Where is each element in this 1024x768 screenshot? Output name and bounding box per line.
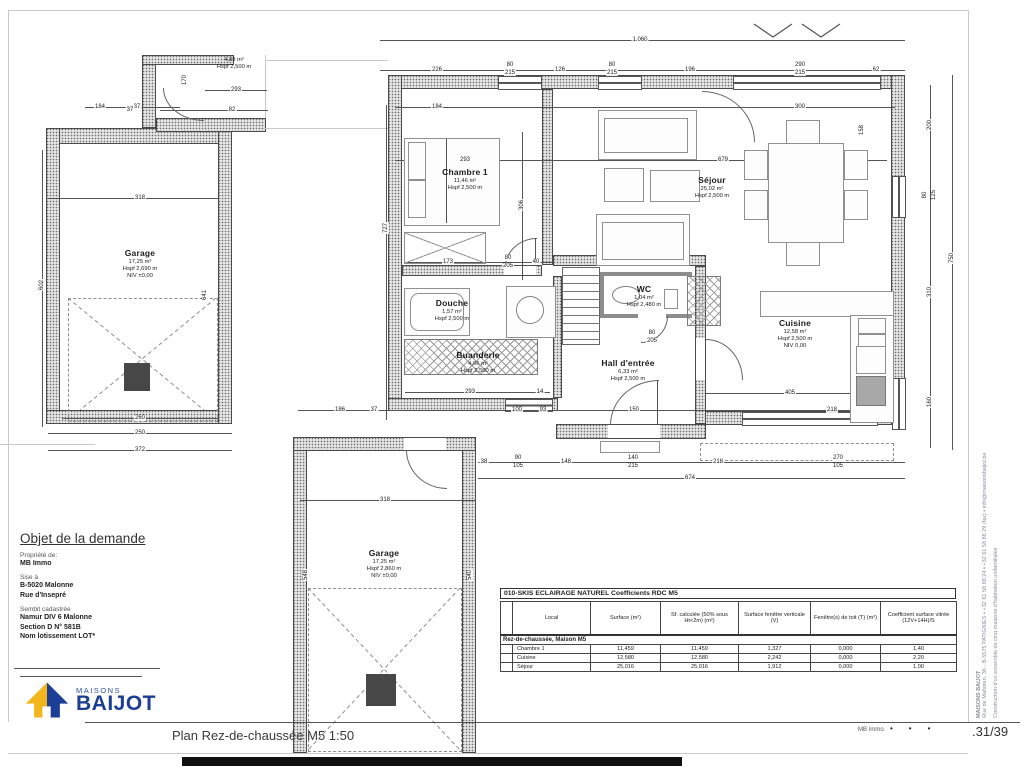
room-name: WC <box>627 284 661 294</box>
table-cell: 11,459 <box>591 645 661 654</box>
room-label: 4,88 m²Hspf 2,500 m <box>217 56 251 70</box>
table-cell: 0,000 <box>811 663 881 672</box>
room-detail: 6,33 m² <box>601 369 654 375</box>
dimension-label: 260 <box>134 415 146 421</box>
room-detail: Hspf 2,500 m <box>217 64 251 70</box>
furniture <box>786 120 820 144</box>
room-name: Garage <box>123 248 157 258</box>
partition-wall <box>600 314 638 318</box>
door-arc <box>706 339 743 380</box>
dimension-label: 184 <box>94 104 106 110</box>
roof-overhang-dashed <box>68 298 218 422</box>
furniture <box>858 318 886 334</box>
partition-wall <box>600 272 604 318</box>
dimension-label: 540 <box>467 569 473 581</box>
room-detail: 25,02 m² <box>695 186 729 192</box>
dimension-label: 80 <box>608 62 617 68</box>
frame-line <box>8 753 968 754</box>
architect-info-sidebar: MAISONS BAIJOT Rue de Mahoten, 36 - B-55… <box>976 198 999 718</box>
dimension-label: 290 <box>794 62 806 68</box>
plan-sheet: Garage17,25 m²Hspf 2,690 mNIV ±0,00Chamb… <box>0 0 1024 768</box>
table-row: Séjour25,01625,0161,9120,0001,00 <box>501 663 957 672</box>
room-name: Garage <box>367 548 401 558</box>
table-cell: 25,016 <box>661 663 739 672</box>
post <box>124 363 150 391</box>
staircase <box>562 267 600 345</box>
room-detail: 4,66 m² <box>456 361 499 367</box>
table-cell: 1,00 <box>881 663 957 672</box>
table-cell: Chambre 1 <box>513 645 591 654</box>
dimension-label: 184 <box>431 104 443 110</box>
dimension-label: 150 <box>628 407 640 413</box>
wall <box>156 118 266 132</box>
furniture <box>604 168 644 202</box>
dimension-label: 218 <box>826 407 838 413</box>
project-description: Construction d'un ensemble de cinq maiso… <box>993 198 999 718</box>
coefficients-table: LocalSurface (m²)Sf. calculée (50% sous … <box>500 601 957 672</box>
dimension-line <box>395 107 895 108</box>
furniture <box>786 242 820 266</box>
room-detail: NIV ±0,00 <box>123 273 157 279</box>
partition-wall <box>600 272 692 276</box>
room-name: Chambre 1 <box>442 167 488 177</box>
room-detail: Hspf 2,480 m <box>627 302 661 308</box>
wall <box>218 128 232 424</box>
room-name: Buanderie <box>456 350 499 360</box>
wall <box>293 437 307 753</box>
address-line2: Rue d'Insepré <box>20 591 220 600</box>
wall <box>142 55 156 128</box>
dimension-label: 93 <box>539 407 548 413</box>
furniture <box>602 222 684 260</box>
window <box>598 76 642 90</box>
dimension-label: 250 <box>134 430 146 436</box>
room-detail: Hspf 2,500 m <box>442 185 488 191</box>
wall <box>462 437 476 753</box>
dimension-label: 173 <box>442 259 454 265</box>
roof-vent-marks <box>752 22 844 40</box>
room-detail: Hspf 2,500 m <box>695 193 729 199</box>
furniture <box>408 142 426 180</box>
room-label: Garage17,25 m²Hspf 2,690 mNIV ±0,00 <box>123 248 157 279</box>
dimension-label: 215 <box>606 70 618 76</box>
dimension-label: 80 <box>506 62 515 68</box>
frame-line <box>265 60 388 61</box>
room-name: Hall d'entrée <box>601 358 654 368</box>
post <box>366 674 396 706</box>
owner-label: Propriété de: <box>20 552 220 559</box>
table-cell: 2,20 <box>881 654 957 663</box>
room-detail: Hspf 2,690 m <box>123 266 157 272</box>
dimension-label: 90 <box>514 455 523 461</box>
logo-name-text: BAIJOT <box>76 695 156 714</box>
dimension-label: 62 <box>872 67 881 73</box>
dimension-label: 306 <box>519 199 525 211</box>
wall <box>542 89 553 265</box>
room-label: Hall d'entrée6,33 m²Hspf 2,500 m <box>601 358 654 382</box>
dimension-label: 215 <box>504 70 516 76</box>
door-arc <box>702 91 755 142</box>
daylight-coefficients-table: 010-SKIS ECLAIRAGE NATUREL Coefficients … <box>500 588 956 672</box>
room-detail: 17,25 m² <box>367 559 401 565</box>
dimension-label: 140 <box>627 455 639 461</box>
wall <box>293 437 476 451</box>
wall-opening <box>404 438 446 450</box>
furniture <box>604 118 688 153</box>
address-line1: B-5020 Malonne <box>20 581 220 590</box>
room-label: Garage17,25 m²Hspf 2,860 mNIV ±0,00 <box>367 548 401 579</box>
dimension-label: 1.060 <box>631 37 648 43</box>
dimension-label: 80 <box>504 255 513 261</box>
room-detail: 1,04 m² <box>627 295 661 301</box>
furniture <box>760 291 894 317</box>
door-arc <box>406 450 447 489</box>
room-detail: 17,25 m² <box>123 259 157 265</box>
table-cell: 25,016 <box>591 663 661 672</box>
dimension-label: 293 <box>459 157 471 163</box>
title-block: Objet de la demande Propriété de: MB Imm… <box>20 531 220 642</box>
room-detail: NIV ±0,00 <box>367 573 401 579</box>
furniture <box>844 150 868 180</box>
frame-line <box>8 10 9 722</box>
dimension-label: 205 <box>646 338 658 344</box>
window <box>892 378 906 430</box>
baijot-house-icon <box>24 680 70 720</box>
table-cell: 12,580 <box>661 654 739 663</box>
dimension-label: 82 <box>228 107 237 113</box>
frame-line <box>0 444 95 445</box>
wall <box>388 75 402 411</box>
dimension-label: 126 <box>554 67 566 73</box>
dimension-label: 674 <box>684 475 696 481</box>
table-cell: Séjour <box>513 663 591 672</box>
room-label: Cuisine12,58 m²Hspf 2,500 mNIV 0,00 <box>778 318 812 349</box>
table-column-header: Local <box>513 602 591 636</box>
window <box>733 76 881 90</box>
dimension-label: 293 <box>230 87 242 93</box>
table-row-lead-cell <box>501 654 513 663</box>
dimension-label: 293 <box>464 389 476 395</box>
table-cell: 1,327 <box>739 645 811 654</box>
appliance <box>856 376 886 406</box>
address-label: Sise à <box>20 574 220 581</box>
room-label: Séjour25,02 m²Hspf 2,500 m <box>695 175 729 199</box>
room-detail: Hspf 2,860 m <box>367 566 401 572</box>
door-arc <box>610 380 659 425</box>
tile-hatch <box>687 276 721 326</box>
window <box>498 76 542 90</box>
dimension-label: 215 <box>627 463 639 469</box>
sheet-title: Plan Rez-de-chaussée M5 1:50 <box>172 728 354 743</box>
dimension-label: 148 <box>560 459 572 465</box>
dimension-line <box>930 85 931 448</box>
dimension-line <box>20 676 142 677</box>
dimension-label: 38 <box>480 459 489 465</box>
wall-opening <box>696 338 705 380</box>
dimension-label: 80 <box>922 191 928 200</box>
table-title: 010-SKIS ECLAIRAGE NATUREL Coefficients … <box>500 588 956 599</box>
window <box>892 176 906 218</box>
maisons-baijot-logo: MAISONS BAIJOT <box>24 680 156 720</box>
table-column-header: Fenêtre(s) de toit (T) (m²) <box>811 602 881 636</box>
dimension-line <box>14 668 160 669</box>
dimension-label: 310 <box>927 286 933 298</box>
room-detail: NIV 0,00 <box>778 343 812 349</box>
dimension-label: 215 <box>794 70 806 76</box>
title-block-heading: Objet de la demande <box>20 531 220 546</box>
table-cell: Cuisine <box>513 654 591 663</box>
dimension-label: 186 <box>334 407 346 413</box>
furniture <box>600 441 660 453</box>
table-column-header: Sf. calculée (50% sous Ht<2m) (m²) <box>661 602 739 636</box>
door-arc <box>163 88 204 121</box>
table-row-lead-cell <box>501 645 513 654</box>
table-cell: 0,000 <box>811 645 881 654</box>
room-detail: Hspf 2,500 m <box>456 368 499 374</box>
room-detail: 11,46 m² <box>442 178 488 184</box>
dimension-label: 641 <box>202 289 208 301</box>
dimension-label: 160 <box>927 396 933 408</box>
dimension-label: 750 <box>949 252 955 264</box>
dimension-label: 158 <box>859 124 865 136</box>
dimension-label: 125 <box>931 189 937 201</box>
dimension-label: 37 <box>126 107 135 113</box>
dimension-label: 602 <box>39 279 45 291</box>
furniture <box>664 289 678 309</box>
cadastre-line2: Section D N° 581B <box>20 623 220 632</box>
dimension-label: 80 <box>648 330 657 336</box>
furniture <box>856 346 886 374</box>
roof-overhang-dashed <box>700 443 894 461</box>
room-detail: Hspf 2,500 m <box>778 336 812 342</box>
table-column-header: Surface fenêtre verticale (V) <box>739 602 811 636</box>
dimension-label: 300 <box>794 104 806 110</box>
footer-owner: MB Immo <box>858 727 884 733</box>
frame-line <box>265 55 266 118</box>
room-detail: 4,88 m² <box>217 57 251 63</box>
table-column-header: Coefficient surface vitrée (12V+14H)/S <box>881 602 957 636</box>
table-cell: 0,000 <box>811 654 881 663</box>
table-cell: 11,459 <box>661 645 739 654</box>
fixture <box>516 296 544 324</box>
furniture <box>768 143 844 243</box>
dimension-label: 205 <box>502 263 514 269</box>
architect-address: Rue de Mahoten, 36 - B-5575 PATIGNIES • … <box>982 198 988 718</box>
dimension-label: 727 <box>383 222 389 234</box>
cadastre-line3: Nom lotissement LOT* <box>20 632 220 641</box>
owner-value: MB Immo <box>20 559 220 568</box>
frame-line <box>968 10 969 722</box>
dimension-label: 548 <box>303 569 309 581</box>
dimension-label: 105 <box>832 463 844 469</box>
dimension-label: 105 <box>512 463 524 469</box>
furniture <box>844 190 868 220</box>
table-cell: 1,912 <box>739 663 811 672</box>
table-row: Cuisine12,58012,5802,2420,0002,20 <box>501 654 957 663</box>
dimension-label: 372 <box>134 447 146 453</box>
room-detail: 12,58 m² <box>778 329 812 335</box>
dimension-label: 318 <box>379 497 391 503</box>
dimension-label: 37 <box>370 407 379 413</box>
cadastre-label: Sembit cadastrée <box>20 606 220 613</box>
footer-dots: ••• <box>890 724 946 733</box>
dimension-line <box>298 410 402 411</box>
room-detail: 1,57 m² <box>435 309 469 315</box>
dimension-label: 226 <box>431 67 443 73</box>
room-label: Buanderie4,66 m²Hspf 2,500 m <box>456 350 499 374</box>
dimension-label: 218 <box>712 459 724 465</box>
dimension-line <box>380 70 905 71</box>
room-detail: Hspf 2,500 m <box>435 316 469 322</box>
cadastre-line1: Namur DIV 6 Malonne <box>20 613 220 622</box>
table-cell: 1,40 <box>881 645 957 654</box>
dimension-line <box>657 380 658 424</box>
furniture <box>744 150 768 180</box>
scan-artifact <box>182 757 682 766</box>
dimension-label: 679 <box>717 157 729 163</box>
table-row: Chambre 111,45911,4591,3270,0001,40 <box>501 645 957 654</box>
dimension-line <box>85 722 1020 723</box>
dimension-label: 200 <box>927 119 933 131</box>
table-cell: 12,580 <box>591 654 661 663</box>
room-label: Chambre 111,46 m²Hspf 2,500 m <box>442 167 488 191</box>
furniture <box>408 180 426 218</box>
room-name: Cuisine <box>778 318 812 328</box>
dimension-line <box>405 392 550 393</box>
dimension-line <box>386 105 387 420</box>
dimension-label: 270 <box>832 455 844 461</box>
table-column-header: Surface (m²) <box>591 602 661 636</box>
dimension-label: 170 <box>182 74 188 86</box>
room-name: Douche <box>435 298 469 308</box>
frame-line <box>265 128 388 129</box>
room-detail: Hspf 2,500 m <box>601 376 654 382</box>
wall <box>46 128 60 424</box>
dimension-label: 196 <box>684 67 696 73</box>
dimension-label: 405 <box>784 390 796 396</box>
page-number: .31/39 <box>972 724 1008 739</box>
dimension-label: 318 <box>134 195 146 201</box>
furniture <box>650 170 700 202</box>
frame-line <box>8 10 968 11</box>
table-cell: 2,242 <box>739 654 811 663</box>
dimension-label: 40 <box>532 259 541 265</box>
table-section-row: Rez-de-chaussée, Maison M5 <box>501 635 957 645</box>
furniture <box>744 190 768 220</box>
wall-opening <box>608 425 660 438</box>
room-label: WC1,04 m²Hspf 2,480 m <box>627 284 661 308</box>
room-label: Douche1,57 m²Hspf 2,500 m <box>435 298 469 322</box>
table-corner-cell <box>501 602 513 636</box>
dimension-label: 100 <box>511 407 523 413</box>
dimension-label: 14 <box>536 389 545 395</box>
room-name: Séjour <box>695 175 729 185</box>
table-row-lead-cell <box>501 663 513 672</box>
